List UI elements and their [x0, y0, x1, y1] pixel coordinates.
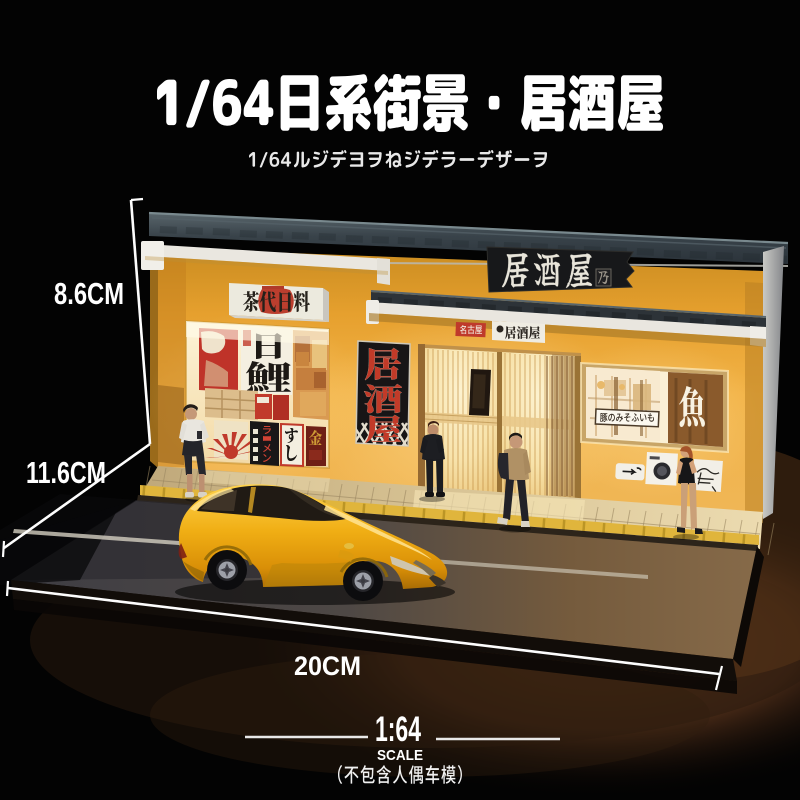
svg-text:11.6CM: 11.6CM: [26, 455, 106, 490]
svg-text:1:64: 1:64: [375, 710, 421, 749]
svg-text:8.6CM: 8.6CM: [54, 276, 124, 311]
svg-text:SCALE: SCALE: [377, 747, 423, 764]
svg-text:20CM: 20CM: [294, 651, 361, 681]
